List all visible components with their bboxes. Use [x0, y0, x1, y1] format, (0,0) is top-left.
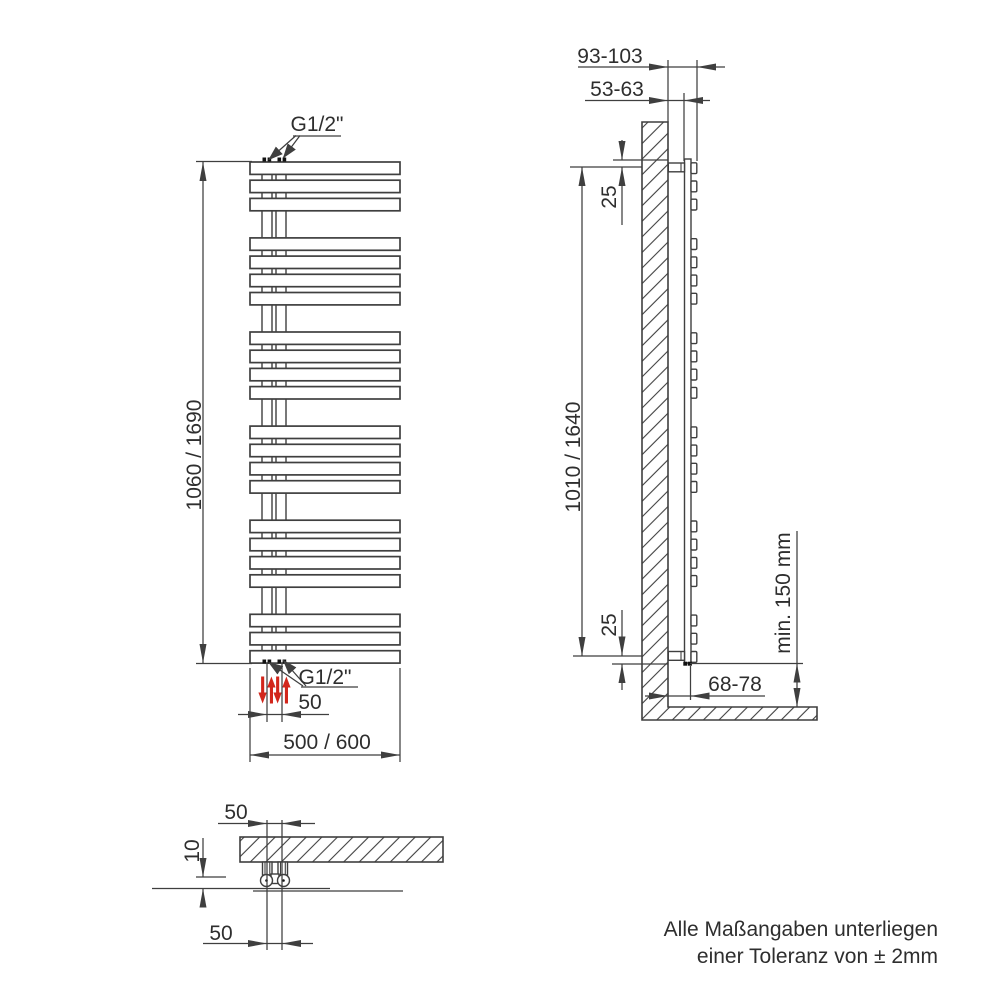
radiator-bar: [250, 238, 400, 250]
top-connection-points: [263, 158, 287, 162]
bar-end-profile: [691, 333, 697, 344]
radiator-bar: [250, 557, 400, 569]
front-height-dimension: 1060 / 1690: [183, 400, 206, 511]
bar-end-profile: [691, 463, 697, 474]
bar-end-profile: [691, 482, 697, 493]
technical-drawing-page: G1/2" 1060 / 1690 G1/2" 50 500 / 600: [0, 0, 1000, 1000]
bottom-offset-dimension: 25: [598, 613, 621, 636]
radiator-bar: [250, 256, 400, 268]
bar-end-profile: [691, 275, 697, 286]
bar-end-profile: [691, 369, 697, 380]
bracket-distance-dimension: 1010 / 1640: [562, 402, 585, 513]
wall-gap-dimension: 10: [181, 839, 204, 862]
radiator-bar: [250, 368, 400, 380]
radiator-bar: [250, 274, 400, 286]
wall-to-tube-dimension: 53-63: [590, 78, 644, 101]
radiator-bar: [250, 633, 400, 645]
top-connection-label: G1/2": [291, 113, 344, 136]
bottom-connection-label: G1/2": [299, 666, 352, 689]
connection-spacing-dimension: 50: [298, 691, 321, 714]
bar-end-profile: [691, 652, 697, 663]
wall-brackets: [668, 163, 684, 660]
mounting-plate-lines: [152, 889, 403, 892]
bar-end-profile: [691, 199, 697, 210]
bar-end-profile: [691, 293, 697, 304]
tolerance-note-line1: Alle Maßangaben unterliegen: [664, 918, 938, 941]
bar-end-profile: [691, 576, 697, 587]
radiator-bar: [250, 651, 400, 663]
tolerance-note: Alle Maßangaben unterliegen einer Tolera…: [664, 918, 938, 968]
bar-end-profile: [691, 257, 697, 268]
radiator-bar: [250, 481, 400, 493]
collector-bar-section: [240, 837, 443, 862]
union-fittings: [261, 874, 290, 887]
radiator-bar: [250, 614, 400, 626]
detail-spacing-dimension-upper: 50: [224, 801, 247, 824]
radiator-bar: [250, 520, 400, 532]
valve-wall-distance-dimension: 68-78: [708, 673, 762, 696]
bar-end-profile: [691, 181, 697, 192]
radiator-dimension-drawing: G1/2" 1060 / 1690 G1/2" 50 500 / 600: [0, 0, 1000, 1000]
bar-end-profile: [691, 615, 697, 626]
side-view: 93-103 53-63 25 1010 / 1640 25 min. 150 …: [562, 45, 817, 720]
bar-end-profile: [691, 445, 697, 456]
detail-spacing-dimension-lower: 50: [209, 922, 232, 945]
collector-tube-side: [685, 159, 692, 663]
bar-end-profile: [691, 387, 697, 398]
connection-detail-view: 50 10 50: [152, 801, 443, 950]
radiator-bar: [250, 180, 400, 192]
front-view: G1/2" 1060 / 1690 G1/2" 50 500 / 600: [183, 113, 400, 762]
radiator-bar: [250, 293, 400, 305]
radiator-bar: [250, 538, 400, 550]
total-depth-dimension: 93-103: [577, 45, 642, 68]
radiator-bar: [250, 162, 400, 174]
radiator-bar: [250, 332, 400, 344]
bar-end-profile: [691, 163, 697, 174]
bar-end-profile: [691, 521, 697, 532]
bar-end-profile: [691, 633, 697, 644]
radiator-bar: [250, 463, 400, 475]
bar-end-profile: [691, 539, 697, 550]
front-width-dimension: 500 / 600: [283, 731, 371, 754]
bar-end-profile: [691, 351, 697, 362]
bar-end-profile: [691, 239, 697, 250]
bar-end-profile: [691, 427, 697, 438]
radiator-bar: [250, 387, 400, 399]
radiator-bar: [250, 198, 400, 210]
floor-clearance-dimension: min. 150 mm: [772, 532, 795, 653]
radiator-bar: [250, 350, 400, 362]
top-offset-dimension: 25: [598, 185, 621, 208]
flow-direction-arrows: [258, 677, 290, 704]
bar-ends-side: [691, 163, 697, 663]
radiator-bar: [250, 426, 400, 438]
bar-end-profile: [691, 557, 697, 568]
connection-risers: [263, 862, 288, 875]
tolerance-note-line2: einer Toleranz von ± 2mm: [697, 945, 938, 968]
radiator-bar: [250, 444, 400, 456]
radiator-bar: [250, 575, 400, 587]
